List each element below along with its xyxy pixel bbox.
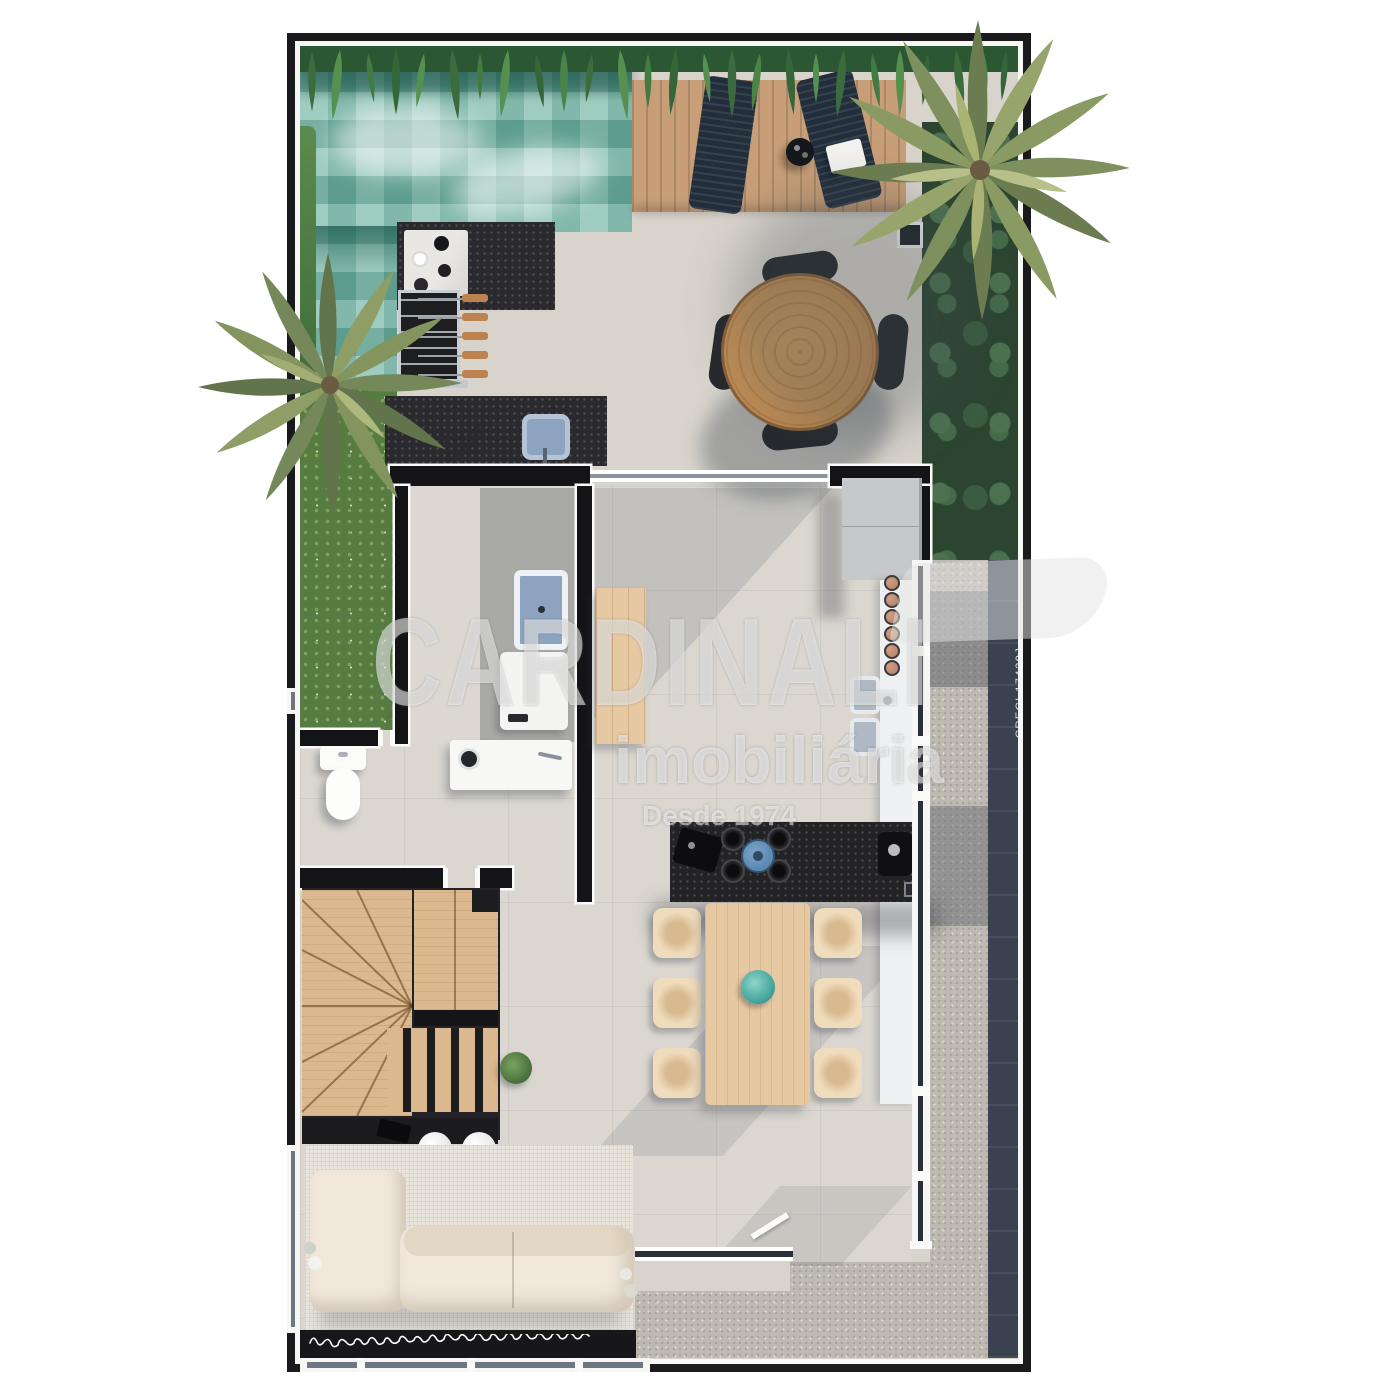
- deco-sphere: [620, 1268, 632, 1280]
- drink-cup: [794, 145, 800, 151]
- dining-table: [705, 903, 810, 1105]
- dining-chair: [653, 978, 701, 1028]
- door-jamb: [443, 868, 448, 888]
- bar-stool: [884, 575, 900, 591]
- dining-chair: [653, 908, 701, 958]
- deco-sphere: [304, 1242, 316, 1254]
- window-mullion: [912, 1086, 930, 1096]
- squiggle-decor: [308, 1334, 628, 1350]
- dining-chair: [814, 908, 862, 958]
- tray-item: [688, 842, 695, 849]
- dining-chair: [814, 1048, 862, 1098]
- window-mullion: [912, 1171, 930, 1181]
- sofa-chaise: [310, 1170, 406, 1312]
- toilet-button: [338, 752, 348, 757]
- stair-notch: [472, 890, 498, 912]
- bathroom-wall: [300, 868, 443, 888]
- window-glass: [291, 1151, 295, 1327]
- watermark-license: CRECI 17429J: [1014, 608, 1026, 738]
- concrete-pad: [930, 806, 988, 926]
- deco-sphere: [308, 1256, 322, 1270]
- watermark-tagline: Desde 1974: [642, 800, 796, 832]
- window: [300, 1358, 650, 1372]
- vanity-sink: [458, 748, 480, 770]
- wall-cap: [910, 1241, 932, 1249]
- hall-wall: [480, 868, 512, 888]
- window-mullion: [467, 1358, 475, 1372]
- window-glass: [291, 692, 295, 710]
- sliding-door: [590, 470, 830, 482]
- faucet: [543, 448, 547, 466]
- toilet-bowl: [326, 768, 360, 820]
- palm-tree: [810, 0, 1150, 340]
- watermark-brand: CARDINALI: [372, 592, 932, 734]
- sofa-back-cushion: [404, 1226, 630, 1256]
- window-mullion: [575, 1358, 583, 1372]
- entrance-wall: [635, 1247, 793, 1261]
- stair-landing-gap: [414, 1010, 498, 1026]
- toilet: [320, 746, 366, 770]
- real-estate-floor-plan-render: CARDINALI imobiliária Desde 1974 CRECI 1…: [0, 0, 1400, 1400]
- dining-chair: [814, 978, 862, 1028]
- kettle-lid: [753, 851, 763, 861]
- sofa-seam: [512, 1232, 514, 1308]
- centerpiece-bowl: [741, 970, 775, 1004]
- stair-treads-open: [387, 1028, 498, 1112]
- palm-tree: [180, 235, 480, 535]
- window: [287, 1145, 300, 1333]
- porch-step: [635, 1261, 790, 1291]
- window: [287, 688, 300, 714]
- window-mullion: [357, 1358, 365, 1372]
- plant-pot: [500, 1052, 532, 1084]
- fridge: [842, 478, 922, 580]
- drink-cup: [802, 152, 808, 158]
- bathroom-wall: [300, 730, 378, 746]
- watermark-subtitle: imobiliária: [614, 722, 944, 798]
- dining-chair: [653, 1048, 701, 1098]
- coffee-cup: [888, 844, 900, 856]
- fridge-divider: [842, 526, 922, 527]
- stair-divider: [454, 890, 456, 1010]
